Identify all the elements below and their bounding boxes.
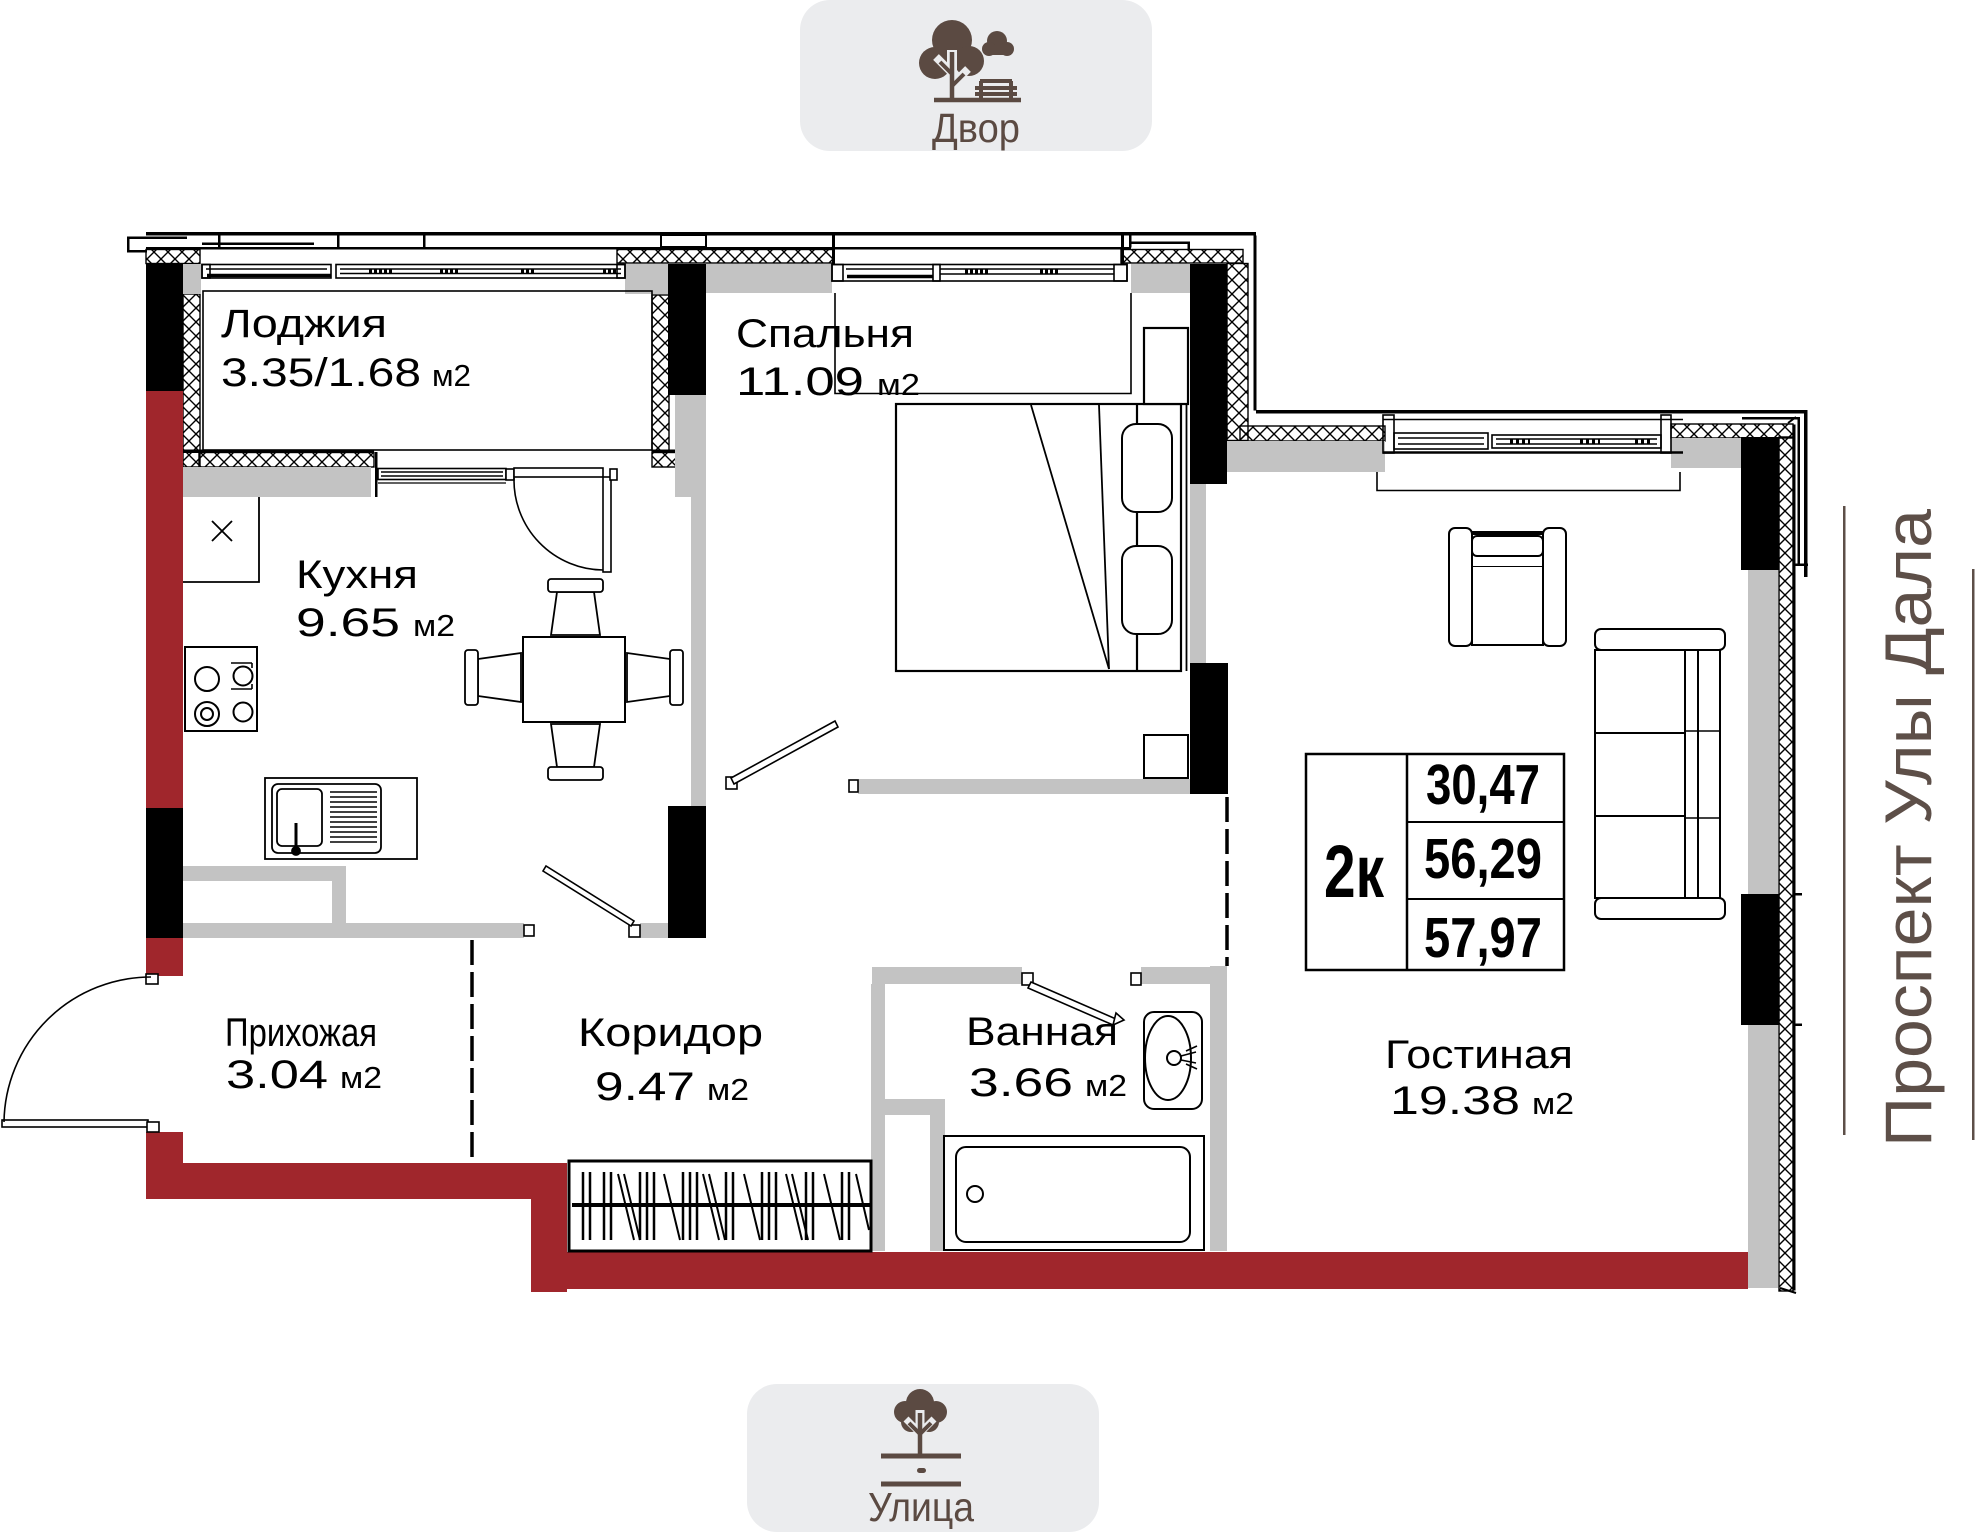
svg-text:м2: м2 (340, 1060, 382, 1095)
svg-text:м2: м2 (1532, 1086, 1574, 1121)
svg-text:11.09: 11.09 (736, 360, 864, 404)
svg-text:9.65: 9.65 (296, 601, 400, 645)
svg-text:Ванная: Ванная (966, 1010, 1118, 1054)
svg-text:Гостиная: Гостиная (1385, 1033, 1573, 1077)
svg-text:Прихожая: Прихожая (225, 1011, 377, 1055)
svg-text:Кухня: Кухня (296, 553, 418, 597)
svg-text:30,47: 30,47 (1426, 753, 1540, 817)
svg-text:м2: м2 (413, 608, 455, 643)
svg-text:Спальня: Спальня (736, 312, 914, 356)
svg-text:м2: м2 (877, 367, 920, 402)
svg-text:2к: 2к (1324, 830, 1385, 913)
svg-text:м2: м2 (432, 358, 471, 393)
svg-text:Проспект Улы Дала: Проспект Улы Дала (1871, 509, 1945, 1147)
svg-text:3.35/1.68: 3.35/1.68 (221, 351, 421, 395)
svg-text:Коридор: Коридор (578, 1011, 763, 1055)
svg-text:м2: м2 (1085, 1068, 1127, 1103)
svg-text:56,29: 56,29 (1424, 827, 1542, 891)
svg-text:19.38: 19.38 (1390, 1079, 1520, 1123)
svg-text:3.04: 3.04 (226, 1053, 328, 1097)
svg-text:Лоджия: Лоджия (221, 302, 387, 346)
svg-text:Улица: Улица (868, 1484, 974, 1530)
svg-text:3.66: 3.66 (969, 1061, 1073, 1105)
svg-text:Двор: Двор (932, 105, 1020, 151)
svg-text:57,97: 57,97 (1424, 906, 1542, 970)
svg-text:м2: м2 (707, 1072, 749, 1107)
svg-text:9.47: 9.47 (595, 1065, 695, 1109)
